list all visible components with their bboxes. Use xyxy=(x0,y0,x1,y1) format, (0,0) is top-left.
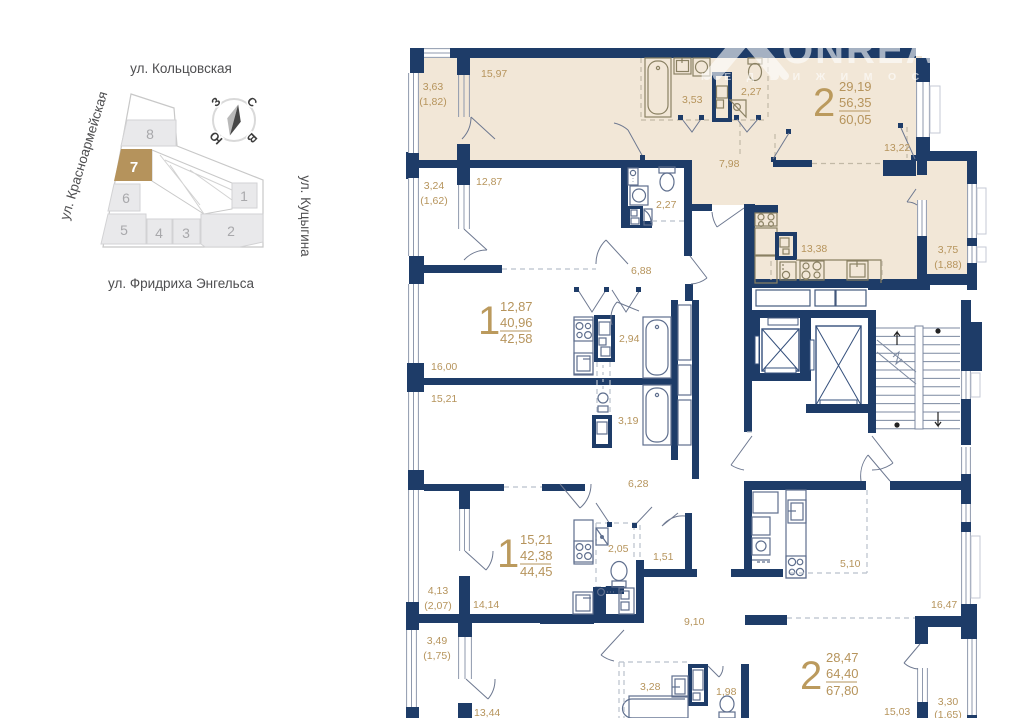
svg-text:1: 1 xyxy=(478,299,500,343)
svg-text:2,27: 2,27 xyxy=(741,86,762,98)
svg-text:7,98: 7,98 xyxy=(719,158,740,170)
svg-text:2,94: 2,94 xyxy=(619,333,640,345)
svg-text:42,38: 42,38 xyxy=(520,548,553,563)
svg-text:(1,88): (1,88) xyxy=(934,259,961,271)
svg-text:НЕДВИЖИМОСТЬ: НЕДВИЖИМОСТЬ xyxy=(701,71,979,83)
svg-text:5: 5 xyxy=(120,222,128,238)
svg-text:(1,62): (1,62) xyxy=(420,195,447,207)
svg-text:1,51: 1,51 xyxy=(653,551,674,563)
svg-text:28,47: 28,47 xyxy=(826,650,859,665)
svg-text:ONREALT: ONREALT xyxy=(782,28,986,72)
svg-text:13,44: 13,44 xyxy=(474,707,500,718)
svg-text:16,00: 16,00 xyxy=(431,361,457,373)
svg-text:4: 4 xyxy=(155,225,163,241)
svg-text:ул. Фридриха Энгельса: ул. Фридриха Энгельса xyxy=(108,276,254,291)
svg-text:6,88: 6,88 xyxy=(631,265,652,277)
svg-text:(1,82): (1,82) xyxy=(419,96,446,108)
svg-text:3,19: 3,19 xyxy=(618,415,639,427)
svg-text:2: 2 xyxy=(800,654,822,698)
svg-text:1,98: 1,98 xyxy=(716,686,737,698)
svg-text:3: 3 xyxy=(182,225,190,241)
svg-text:3,28: 3,28 xyxy=(640,681,661,693)
svg-text:60,05: 60,05 xyxy=(839,112,872,127)
svg-text:3,49: 3,49 xyxy=(427,635,448,647)
svg-text:67,80: 67,80 xyxy=(826,683,859,698)
svg-text:9,10: 9,10 xyxy=(684,616,705,628)
svg-text:(1,75): (1,75) xyxy=(423,650,450,662)
svg-text:15,21: 15,21 xyxy=(431,393,457,405)
svg-text:42,58: 42,58 xyxy=(500,331,533,346)
svg-text:3,24: 3,24 xyxy=(424,180,445,192)
svg-text:(1,65): (1,65) xyxy=(934,709,961,718)
svg-text:64,40: 64,40 xyxy=(826,666,859,681)
svg-text:13,38: 13,38 xyxy=(801,243,827,255)
svg-text:4,13: 4,13 xyxy=(428,585,449,597)
svg-text:2: 2 xyxy=(813,81,835,125)
svg-text:6: 6 xyxy=(122,190,130,206)
svg-text:15,03: 15,03 xyxy=(884,706,910,718)
svg-text:2: 2 xyxy=(227,223,235,239)
svg-text:5,10: 5,10 xyxy=(840,558,861,570)
svg-text:ул. Куцыгина: ул. Куцыгина xyxy=(298,175,313,257)
svg-text:3,30: 3,30 xyxy=(938,696,959,708)
svg-text:7: 7 xyxy=(130,159,138,176)
svg-text:3,53: 3,53 xyxy=(682,94,703,106)
svg-text:1: 1 xyxy=(240,188,248,204)
svg-text:ул. Кольцовская: ул. Кольцовская xyxy=(130,61,232,76)
svg-text:2,27: 2,27 xyxy=(656,199,677,211)
svg-text:14,14: 14,14 xyxy=(473,599,499,611)
svg-text:13,22: 13,22 xyxy=(884,142,910,154)
svg-text:12,87: 12,87 xyxy=(500,299,533,314)
svg-text:12,87: 12,87 xyxy=(476,176,502,188)
svg-text:44,45: 44,45 xyxy=(520,564,553,579)
svg-text:16,47: 16,47 xyxy=(931,599,957,611)
svg-text:1: 1 xyxy=(497,532,519,576)
svg-text:3,63: 3,63 xyxy=(423,81,444,93)
svg-text:8: 8 xyxy=(146,126,154,142)
svg-text:3,75: 3,75 xyxy=(938,244,959,256)
svg-text:6,28: 6,28 xyxy=(628,478,649,490)
svg-text:15,97: 15,97 xyxy=(481,68,507,80)
svg-text:40,96: 40,96 xyxy=(500,315,533,330)
svg-text:2,05: 2,05 xyxy=(608,543,629,555)
svg-text:15,21: 15,21 xyxy=(520,532,553,547)
svg-text:(2,07): (2,07) xyxy=(424,600,451,612)
svg-text:56,35: 56,35 xyxy=(839,95,872,110)
